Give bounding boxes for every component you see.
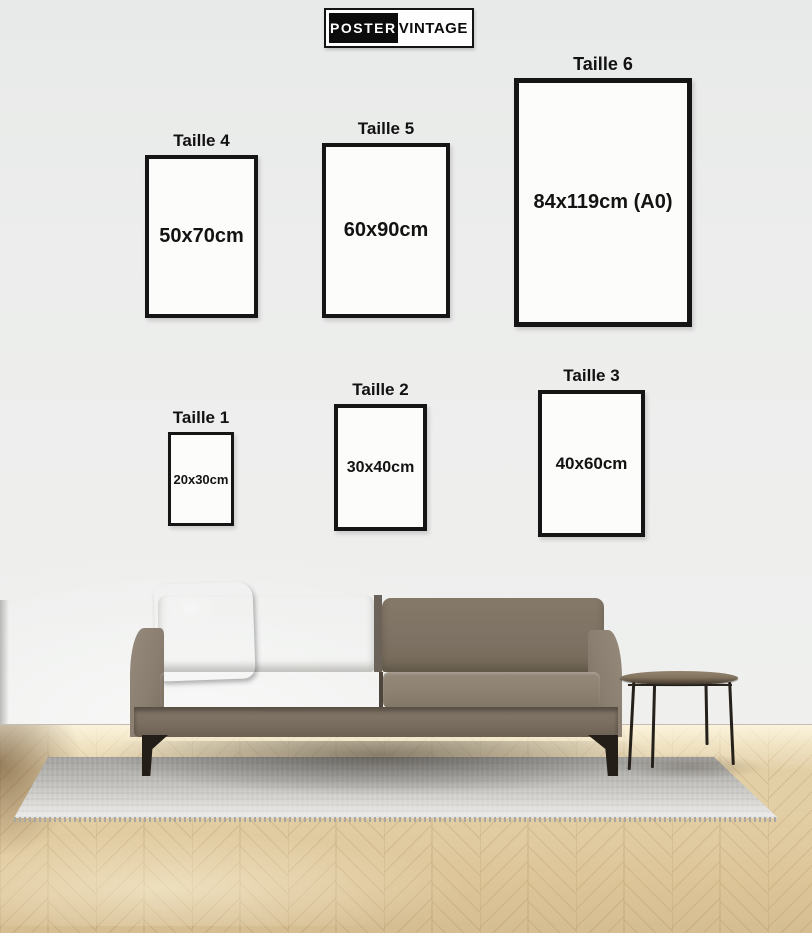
brand-logo-poster: POSTER — [329, 13, 398, 43]
size-dimensions: 50x70cm — [159, 225, 244, 248]
size-label: Taille 3 — [538, 366, 645, 386]
size-card-taille-6: Taille 6 84x119cm (A0) — [514, 54, 692, 327]
size-dimensions: 40x60cm — [556, 454, 628, 474]
rug-fringe — [14, 817, 776, 822]
sofa-seat-cushion-right — [383, 672, 600, 708]
size-label: Taille 5 — [322, 119, 450, 139]
poster-frame: 30x40cm — [334, 404, 427, 531]
size-label: Taille 4 — [145, 131, 258, 151]
size-label: Taille 6 — [514, 54, 692, 74]
sofa-back-cushion-right — [382, 598, 604, 672]
poster-frame: 20x30cm — [168, 432, 234, 526]
sofa-seat-cushion-left — [160, 672, 379, 708]
sofa-leg-right — [588, 735, 618, 776]
sofa-leg-left — [142, 735, 168, 776]
side-table-top — [620, 671, 738, 685]
poster-frame: 50x70cm — [145, 155, 258, 318]
size-dimensions: 20x30cm — [174, 472, 229, 487]
size-card-taille-3: Taille 3 40x60cm — [538, 366, 645, 537]
floor-sheen — [0, 831, 470, 926]
size-dimensions: 30x40cm — [347, 459, 415, 477]
size-card-taille-4: Taille 4 50x70cm — [145, 131, 258, 318]
sofa-base — [134, 707, 618, 737]
size-dimensions: 60x90cm — [344, 219, 429, 242]
poster-frame: 40x60cm — [538, 390, 645, 537]
table-shadow — [612, 754, 767, 780]
poster-size-guide: POSTER VINTAGE Taille 4 50x70cm Taille 5… — [0, 0, 812, 933]
size-dimensions: 84x119cm (A0) — [534, 191, 673, 214]
size-label: Taille 2 — [334, 380, 427, 400]
size-label: Taille 1 — [168, 408, 234, 428]
size-card-taille-2: Taille 2 30x40cm — [334, 380, 427, 531]
poster-frame: 60x90cm — [322, 143, 450, 318]
size-card-taille-5: Taille 5 60x90cm — [322, 119, 450, 318]
sofa-cushion-gap — [374, 595, 382, 672]
brand-logo: POSTER VINTAGE — [324, 8, 474, 48]
size-card-taille-1: Taille 1 20x30cm — [168, 408, 234, 526]
wall-corner-shadow — [0, 600, 9, 724]
pillow-highlight — [163, 589, 218, 627]
brand-logo-vintage: VINTAGE — [398, 13, 469, 43]
poster-frame: 84x119cm (A0) — [514, 78, 692, 327]
sofa — [130, 583, 622, 776]
